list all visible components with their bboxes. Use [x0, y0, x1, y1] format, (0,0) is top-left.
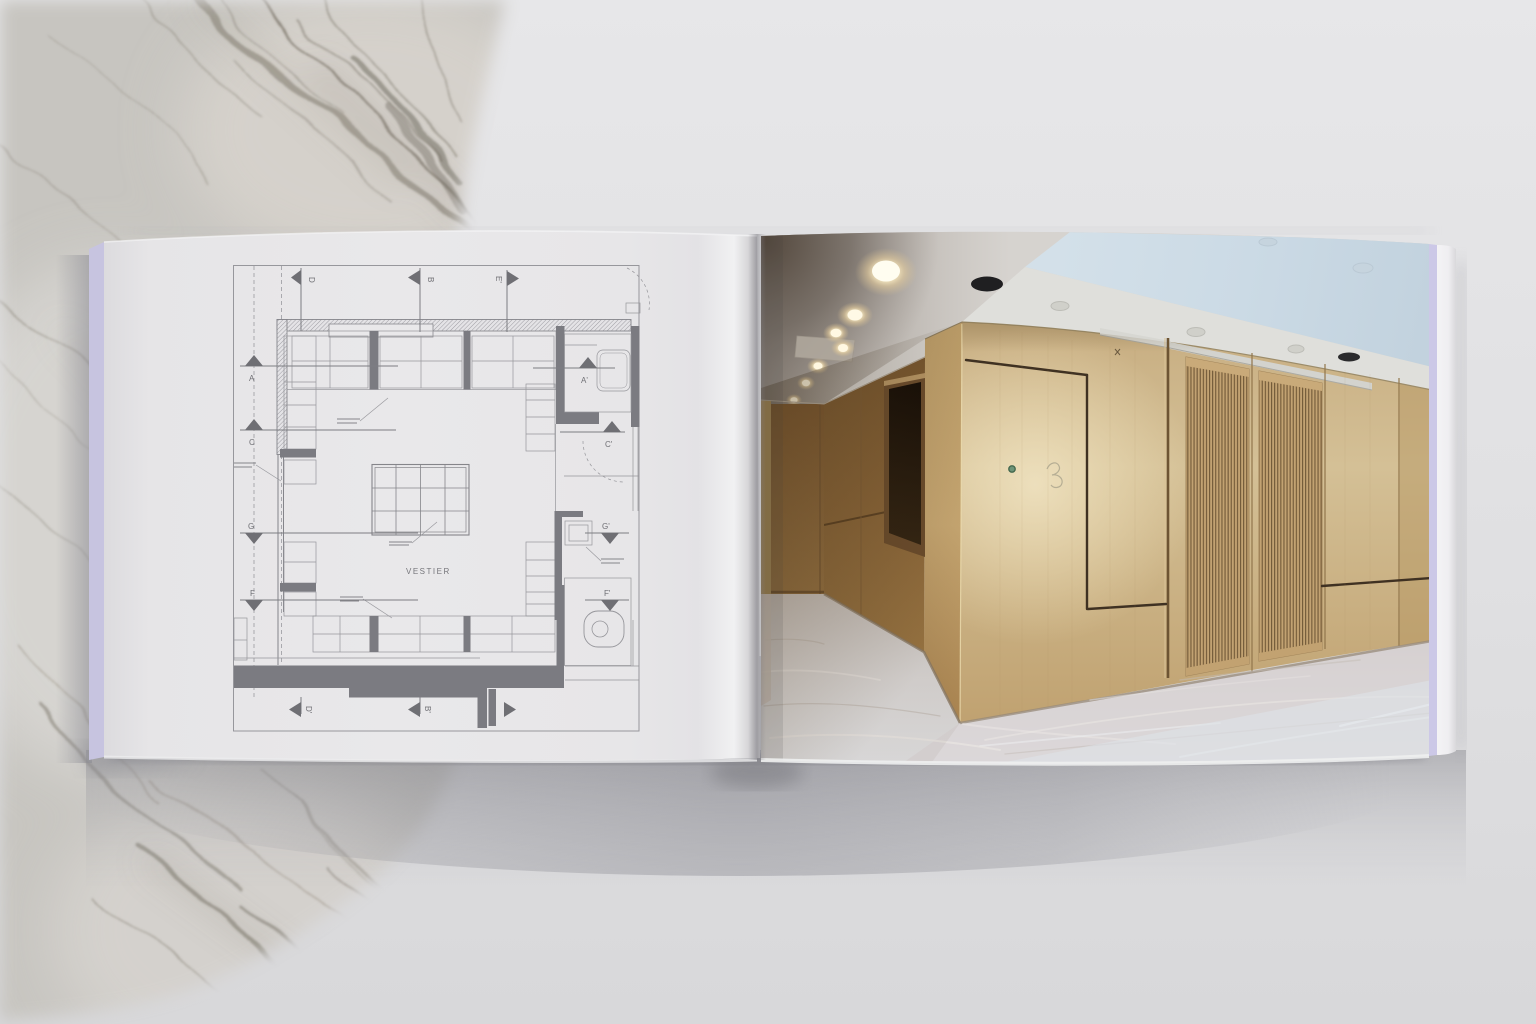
svg-text:F: F [250, 589, 255, 598]
svg-text:B': B' [423, 706, 432, 713]
svg-text:G: G [248, 522, 254, 531]
svg-text:G': G' [602, 522, 610, 531]
svg-text:C: C [249, 438, 255, 447]
svg-text:D': D' [304, 706, 313, 714]
svg-text:VESTIER: VESTIER [406, 567, 451, 576]
svg-text:A: A [249, 374, 255, 383]
svg-text:B: B [426, 277, 435, 282]
svg-text:A': A' [581, 376, 588, 385]
svg-text:C': C' [605, 440, 613, 449]
svg-text:E': E' [494, 276, 503, 283]
svg-text:D: D [307, 277, 316, 283]
svg-text:F': F' [604, 589, 611, 598]
